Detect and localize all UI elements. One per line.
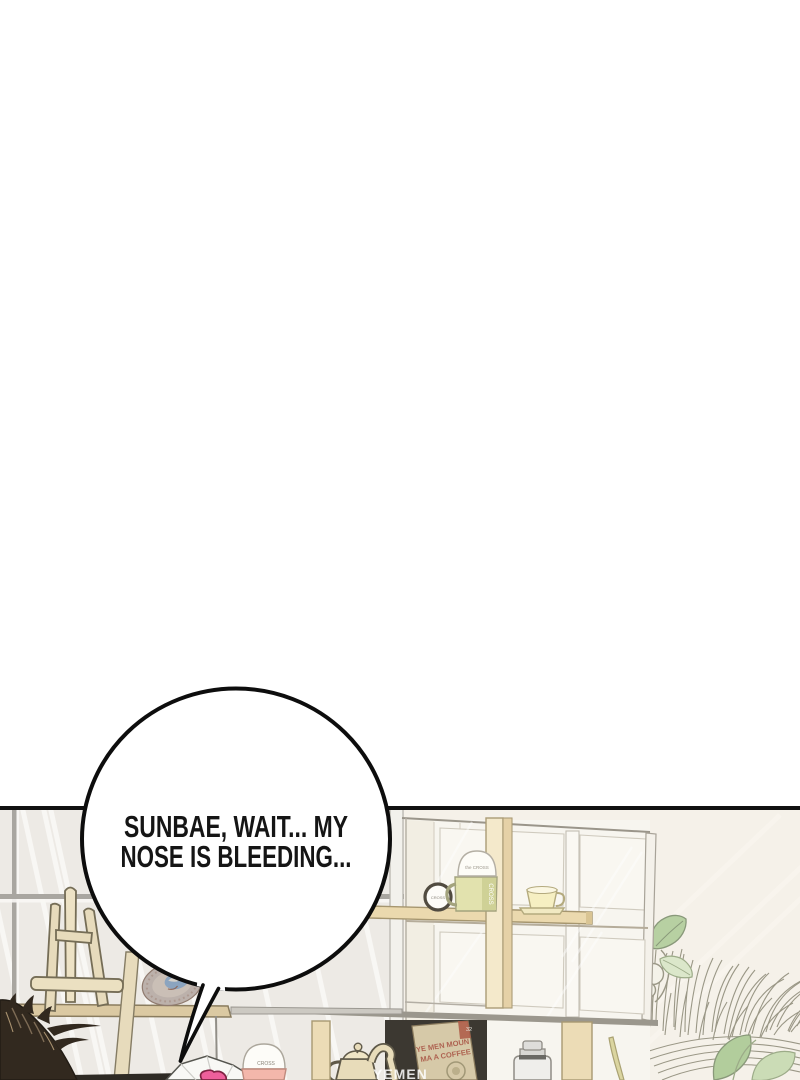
- svg-text:CROSS: CROSS: [257, 1061, 275, 1067]
- svg-text:the CROSS: the CROSS: [465, 865, 489, 870]
- svg-text:32: 32: [466, 1027, 472, 1033]
- svg-text:CROSS: CROSS: [487, 883, 493, 904]
- svg-text:CROSS: CROSS: [431, 895, 446, 900]
- svg-text:YEMEN: YEMEN: [373, 1066, 428, 1080]
- svg-text:NOSE IS BLEEDING...: NOSE IS BLEEDING...: [121, 839, 352, 874]
